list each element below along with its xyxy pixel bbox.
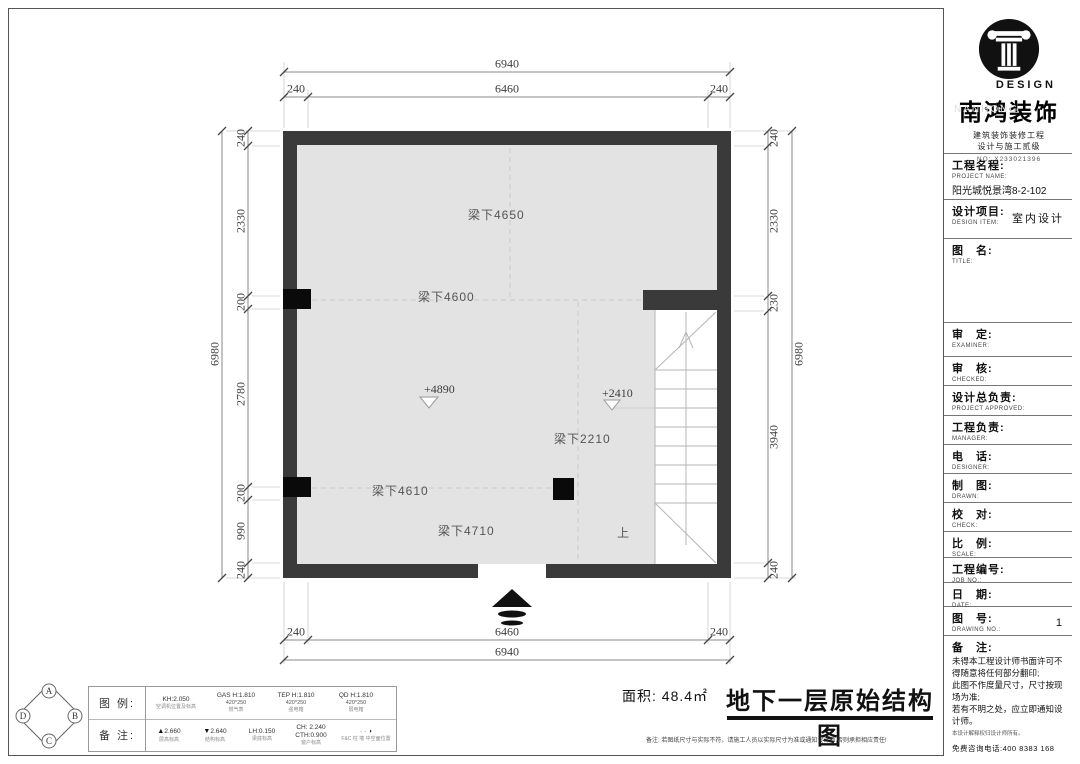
dim-left-200b: 200 <box>234 484 249 502</box>
legend-row-notes: ▲2.660 层高标高 ▼2.640 结构标高 LH:0.150 梁底标高 CH… <box>146 720 396 752</box>
elevation-label-4890: +4890 <box>424 382 455 397</box>
legend-row2-label: 备 注: <box>89 720 145 752</box>
field-project-name: 工程名程: PROJECT NAME: 阳光城悦景湾8-2-102 <box>944 154 1072 200</box>
dim-bot-240r: 240 <box>710 625 728 640</box>
dim-top-240r: 240 <box>710 82 728 97</box>
area-label: 面积: 48.4㎡ <box>622 686 708 706</box>
drawing-no-value: 1 <box>1056 617 1064 629</box>
dim-top-overall: 6940 <box>495 57 519 72</box>
legend-row-symbols: KH:2.050 空调机位置及标高 GAS H:1.810 420*250 燃气… <box>146 687 396 720</box>
axis-label-d: D <box>20 711 27 721</box>
service-phone: 免费咨询电话:400 8383 168 <box>952 743 1066 754</box>
dim-top-6460: 6460 <box>495 82 519 97</box>
axis-label-c: C <box>46 736 52 746</box>
dim-left-2330: 2330 <box>234 209 249 233</box>
dim-left-240b: 240 <box>234 561 249 579</box>
beam-label-4600: 梁下4600 <box>418 288 475 305</box>
footer-note: 备注: 若图纸尺寸与实际不符，请施工人员以实际尺寸为准或通知设计师,否则承担相应… <box>646 735 938 744</box>
dim-right-2330: 2330 <box>767 209 782 233</box>
field-examiner: 审 定: EXAMINER: <box>944 323 1072 356</box>
dim-left-240a: 240 <box>234 129 249 147</box>
field-manager: 工程负责: MANAGER: <box>944 416 1072 445</box>
titleblock: NANHONG DESIGN 南鸿装饰 建筑装饰装修工程 设计与施工贰级 NO:… <box>944 8 1072 756</box>
beam-label-2210: 梁下2210 <box>554 430 611 447</box>
dim-left-990: 990 <box>234 522 249 540</box>
dim-top-240l: 240 <box>287 82 305 97</box>
design-item-value: 室内设计 <box>1012 210 1064 226</box>
wall-stair-stub <box>643 290 717 310</box>
brand-sub2: 设计与施工贰级 <box>952 141 1066 152</box>
wall-left <box>283 131 297 578</box>
legend-item-qd: QD H:1.810 420*250 弱电箱 <box>328 692 384 713</box>
field-drawn: 制 图: DRAWN: <box>944 474 1072 503</box>
drawing-sheet: A B C D 梁下4650 梁下4600 +4890 +2410 梁下2210… <box>0 0 1080 764</box>
dim-left-2780: 2780 <box>234 382 249 406</box>
brand-section: NANHONG DESIGN 南鸿装饰 建筑装饰装修工程 设计与施工贰级 NO:… <box>944 8 1072 154</box>
legend-row1-label: 图 例: <box>89 687 145 720</box>
field-check: 校 对: CHECK: <box>944 503 1072 532</box>
legend-item-gas: GAS H:1.810 420*250 燃气表 <box>208 692 264 713</box>
field-project-approved: 设计总负责: PROJECT APPROVED: <box>944 386 1072 416</box>
titleblock-divider <box>943 8 944 756</box>
brand-design-text: DESIGN <box>952 79 1066 91</box>
dim-left-overall: 6980 <box>208 342 223 366</box>
door-opening <box>478 564 546 578</box>
drawing-title-underline <box>727 716 933 720</box>
field-design-item: 设计项目: DESIGN ITEM: 室内设计 <box>944 200 1072 239</box>
legend-note-down: ▼2.640 结构标高 <box>194 728 236 743</box>
brand-watermark: NANHONG <box>954 104 1019 115</box>
field-checked: 审 核: CHECKED: <box>944 357 1072 387</box>
axis-label-b: B <box>72 711 78 721</box>
elevation-marker-icon <box>420 397 438 408</box>
elevation-label-2410: +2410 <box>602 386 633 401</box>
field-job-no: 工程编号: JOB NO.: <box>944 558 1072 583</box>
dim-bot-6460: 6460 <box>495 625 519 640</box>
dim-bot-240l: 240 <box>287 625 305 640</box>
field-scale: 比 例: SCALE: <box>944 532 1072 558</box>
entry-arrow-icon <box>492 589 532 626</box>
dim-bot-overall: 6940 <box>495 645 519 660</box>
project-name-value: 阳光城悦景湾8-2-102 <box>952 182 1066 197</box>
field-remark: 备 注: 未得本工程设计师书面许可不得随意将任何部分翻印; 此图不作度量尺寸，尺… <box>944 636 1072 756</box>
legend-item-tep: TEP H:1.810 420*250 强电箱 <box>268 692 324 713</box>
legend-note-up: ▲2.660 层高标高 <box>148 728 190 743</box>
stair-up-label: 上 <box>617 524 630 541</box>
column-mid <box>553 478 574 500</box>
dim-right-3940: 3940 <box>767 425 782 449</box>
dim-right-230: 230 <box>767 294 782 312</box>
field-phone: 电 话: DESIGNER: <box>944 445 1072 474</box>
beam-label-4610: 梁下4610 <box>372 482 429 499</box>
legend-note-lh: LH:0.150 梁底标高 <box>240 728 284 742</box>
elevation-marker-icon <box>604 400 620 410</box>
dim-right-240b: 240 <box>767 561 782 579</box>
legend-table: 图 例: 备 注: KH:2.050 空调机位置及标高 GAS H:1.810 … <box>88 686 397 752</box>
dim-right-overall: 6980 <box>792 342 807 366</box>
dim-left-200a: 200 <box>234 293 249 311</box>
field-title: 图 名: TITLE: <box>944 239 1072 323</box>
legend-item-kh: KH:2.050 空调机位置及标高 <box>148 696 204 710</box>
axis-label-a: A <box>46 686 53 696</box>
column-left-lower <box>283 477 311 497</box>
half-circle-icon: ◑ <box>368 728 372 735</box>
stairs <box>655 310 717 564</box>
legend-note-ch: CH: 2.240 CTH:0.900 窗户标高 <box>288 724 334 747</box>
legend-note-misc: · · ◑ F&C 柱 墙 中空面位置 <box>338 728 394 742</box>
plan-linework: A B C D <box>0 0 1080 764</box>
company-logo-icon <box>973 18 1045 80</box>
beam-label-4650: 梁下4650 <box>468 206 525 223</box>
beam-label-4710: 梁下4710 <box>438 522 495 539</box>
brand-sub1: 建筑装饰装修工程 <box>952 130 1066 141</box>
column-left-upper <box>283 289 311 309</box>
field-date: 日 期: DATE: <box>944 583 1072 607</box>
wall-right <box>717 131 731 578</box>
field-drawing-no: 图 号: DRAWING NO.: 1 <box>944 607 1072 636</box>
wall-top <box>283 131 731 145</box>
dim-right-240a: 240 <box>767 129 782 147</box>
